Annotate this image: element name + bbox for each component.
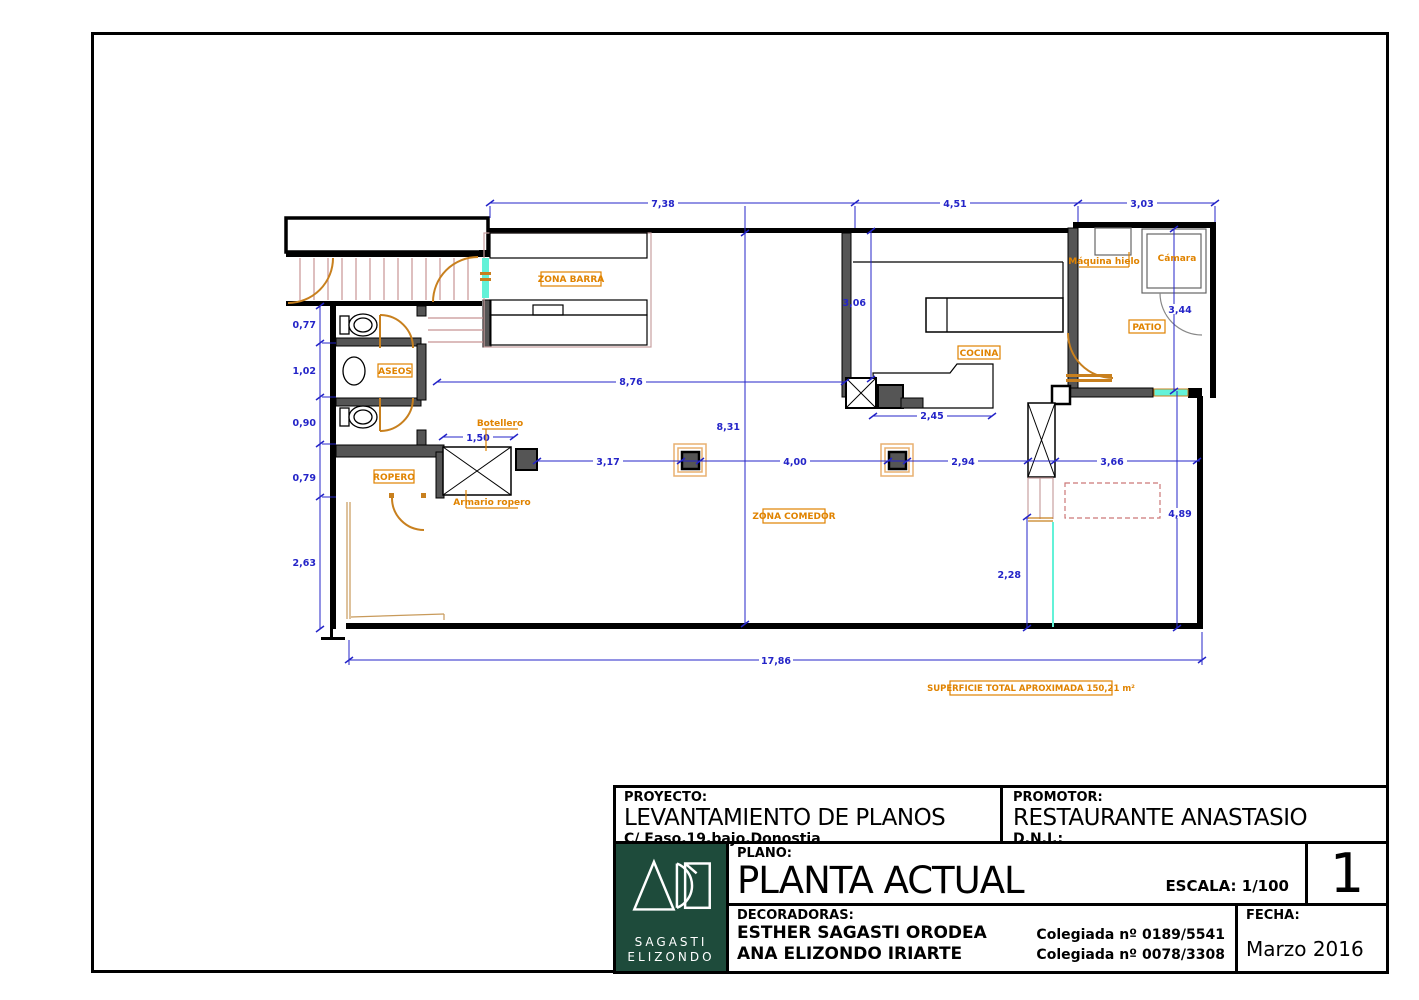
dim-1786: 17,86 (761, 656, 791, 667)
fecha-value: Marzo 2016 (1246, 937, 1378, 961)
sheet-number: 1 (1308, 844, 1386, 904)
sagasti-elizondo-logo-mark (630, 852, 714, 916)
dim-chain-4: 3,66 (1100, 457, 1124, 468)
promotor-cell: PROMOTOR: RESTAURANTE ANASTASIO D.N.I.: (1003, 788, 1386, 844)
dim-344: 3,44 (1168, 305, 1192, 316)
fecha-label: FECHA: (1246, 908, 1378, 923)
ropero-door-arc (392, 498, 424, 530)
dim-left-2: 1,02 (293, 366, 316, 377)
decoradoras-label: DECORADORAS: (737, 908, 1227, 923)
kitchen-shaft (846, 378, 923, 408)
label-aseos: ASEOS (378, 367, 412, 377)
dimension-labels: 7,38 4,51 3,03 0,77 1,02 0,90 0,79 2,63 … (293, 198, 1194, 667)
wardrobe-cabinet (443, 447, 537, 495)
promotor-label: PROMOTOR: (1013, 790, 1376, 805)
dim-876: 8,76 (619, 377, 643, 388)
wall-finish-lines (347, 502, 444, 620)
window-glass (480, 258, 491, 298)
toilet-1 (340, 314, 377, 336)
label-zona-comedor: ZONA COMEDOR (752, 512, 835, 522)
sink (343, 357, 365, 385)
dim-top-3: 3,03 (1130, 199, 1153, 210)
title-block: PROYECTO: LEVANTAMIENTO DE PLANOS C/ Eas… (613, 785, 1389, 974)
shaft-lower (1028, 478, 1053, 521)
dim-left-1: 0,77 (293, 320, 316, 331)
steps-to-bar (428, 318, 483, 342)
label-zona-barra: ZONA BARRA (538, 275, 604, 285)
logo-cell: SAGASTI ELIZONDO (616, 844, 729, 971)
dim-top-2: 4,51 (943, 199, 966, 210)
dim-831: 8,31 (717, 422, 740, 433)
dim-chain-2: 4,00 (783, 457, 807, 468)
dim-chain-3: 2,94 (951, 457, 975, 468)
proyecto-title: LEVANTAMIENTO DE PLANOS (624, 805, 992, 831)
decoradoras-cell: DECORADORAS: ESTHER SAGASTI ORODEA ANA E… (729, 906, 1238, 971)
door-post (1052, 386, 1070, 404)
patio-fixtures (1095, 228, 1206, 335)
entry-door-arc (288, 258, 333, 303)
logo-text: SAGASTI ELIZONDO (616, 935, 726, 965)
dim-228: 2,28 (998, 570, 1022, 581)
label-superficie: SUPERFICIE TOTAL APROXIMADA 150,21 m² (927, 684, 1135, 694)
logo-line-1: SAGASTI (616, 935, 726, 950)
label-botellero: Botellero (477, 419, 523, 429)
plano-cell: PLANO: PLANTA ACTUAL ESCALA: 1/100 (729, 844, 1308, 906)
dim-245: 2,45 (920, 411, 943, 422)
shaft-element (1028, 403, 1055, 477)
colegiada-2: Colegiada nº 0078/3308 (1036, 945, 1225, 965)
facade-block (286, 218, 488, 252)
dim-left-4: 0,79 (293, 473, 316, 484)
label-ropero: ROPERO (373, 473, 415, 483)
stair-hatch (300, 258, 468, 300)
colegiada-1: Colegiada nº 0189/5541 (1036, 925, 1225, 945)
dim-chain-1: 3,17 (596, 457, 619, 468)
dim-top-1: 7,38 (651, 199, 675, 210)
toilet-2 (340, 406, 377, 428)
dim-306: 3,06 (843, 298, 867, 309)
fecha-cell: FECHA: Marzo 2016 (1238, 906, 1386, 971)
dimension-ticks (316, 200, 1219, 663)
proyecto-cell: PROYECTO: LEVANTAMIENTO DE PLANOS C/ Eas… (616, 788, 1003, 844)
label-cocina: COCINA (960, 349, 999, 359)
logo-line-2: ELIZONDO (616, 950, 726, 965)
promotor-name: RESTAURANTE ANASTASIO (1013, 805, 1376, 831)
label-patio: PATIO (1132, 323, 1162, 333)
dim-left-3: 0,90 (293, 418, 317, 429)
label-camara: Cámara (1158, 254, 1197, 264)
dim-489: 4,89 (1168, 509, 1191, 520)
sheet-number-cell: 1 (1308, 844, 1386, 906)
proyecto-label: PROYECTO: (624, 790, 992, 805)
escala-value: ESCALA: 1/100 (1165, 877, 1289, 895)
ice-machine (1095, 228, 1131, 255)
bar-counter (484, 233, 651, 347)
label-armario-ropero: Armario ropero (453, 498, 530, 508)
colegiada-box: Colegiada nº 0189/5541 Colegiada nº 0078… (1036, 925, 1225, 965)
dashed-reserved-area (1065, 483, 1160, 518)
dim-left-5: 2,63 (293, 558, 316, 569)
